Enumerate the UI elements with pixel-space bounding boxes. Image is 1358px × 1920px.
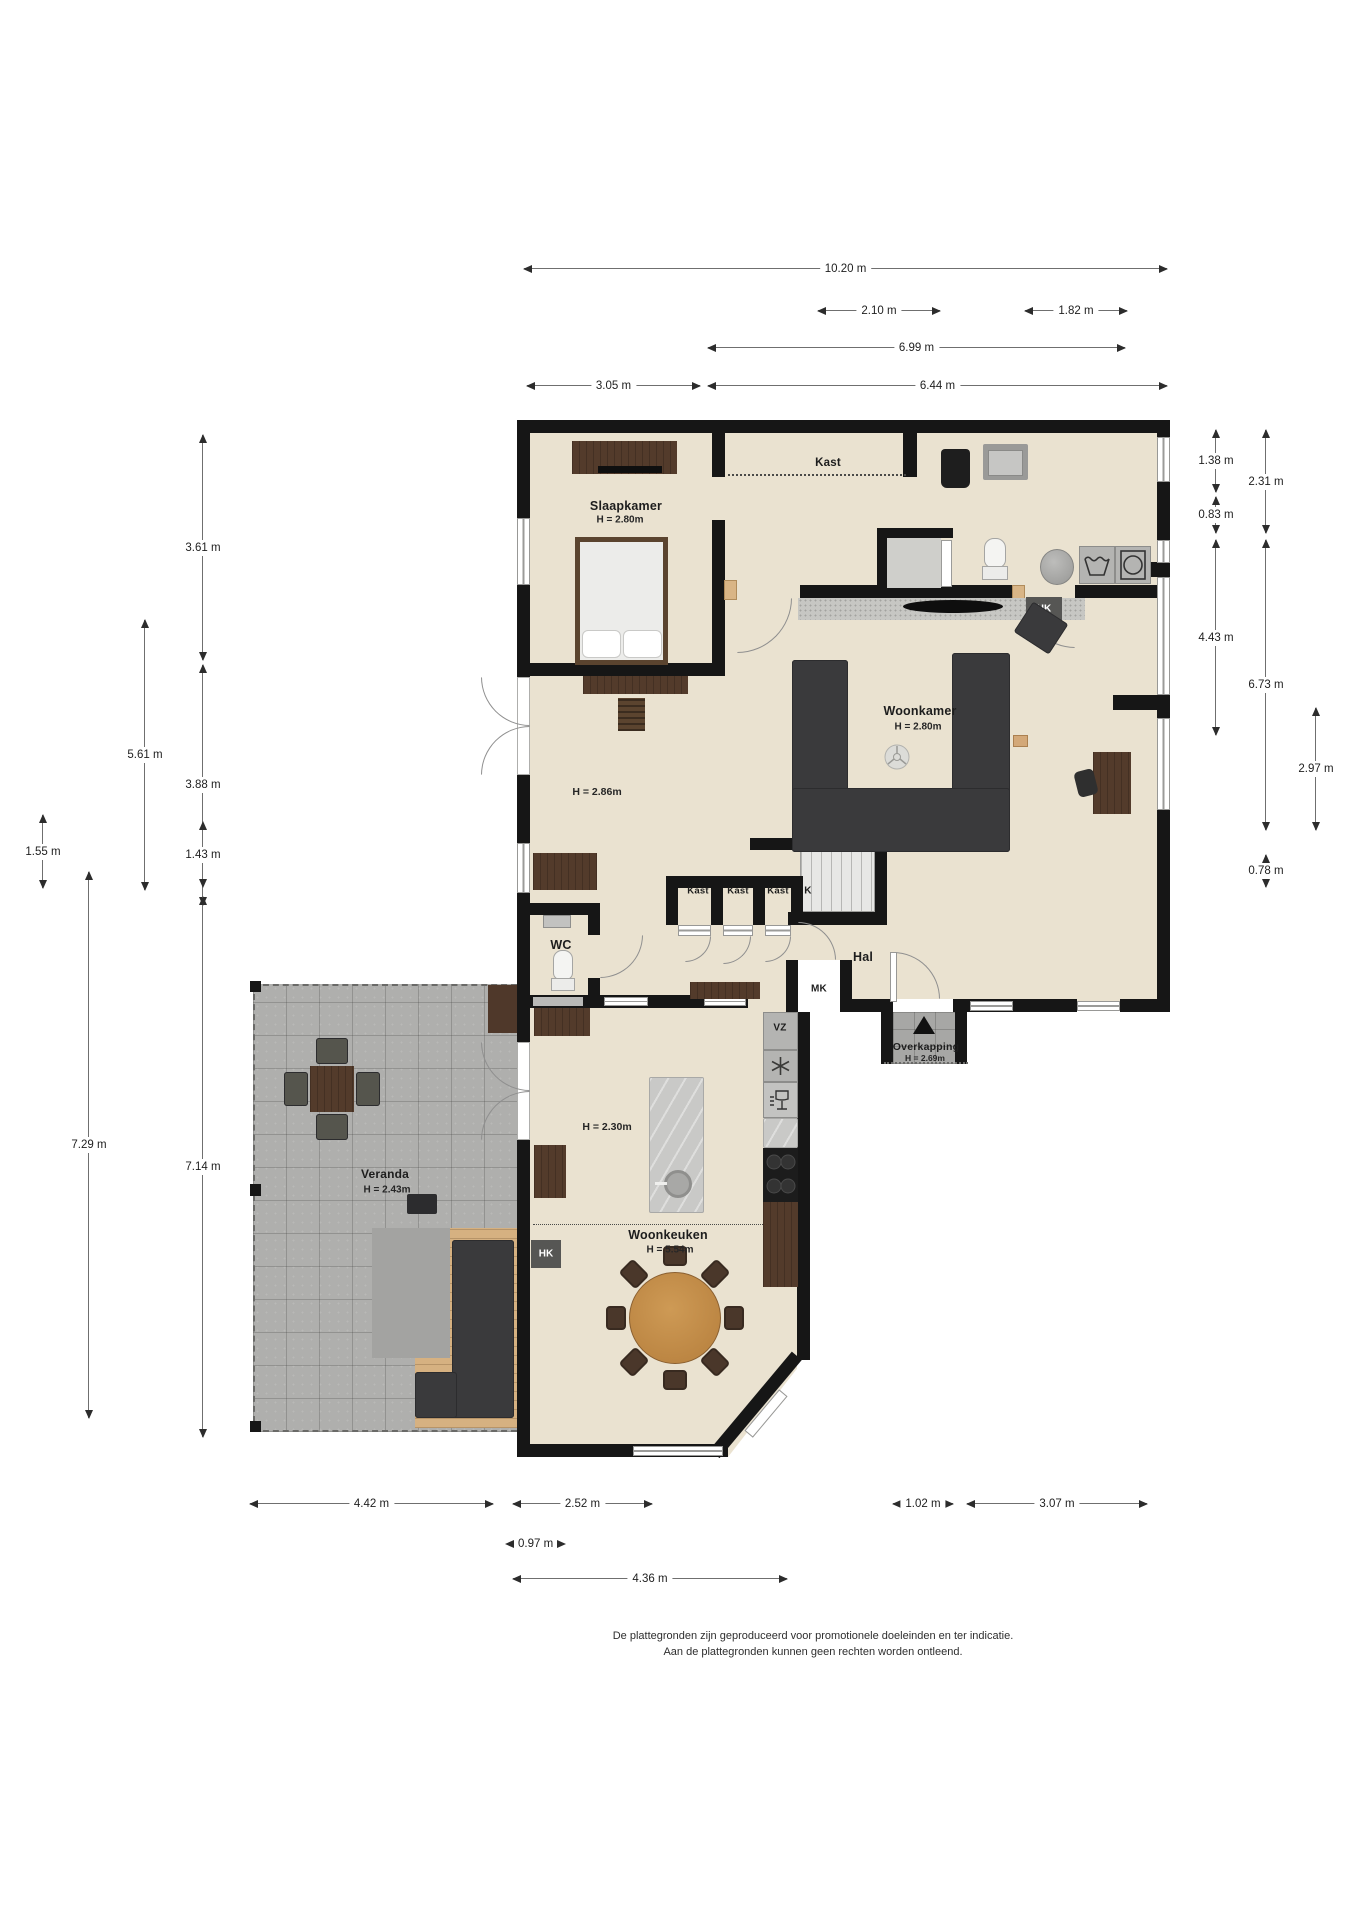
- veranda-bench: [356, 1072, 380, 1106]
- room-height-veranda: H = 2.43m: [364, 1185, 411, 1196]
- veranda-bench: [316, 1038, 348, 1064]
- dim-bottom-102: 1.02 m: [893, 1503, 953, 1504]
- disclaimer-line2: Aan de plattegronden kunnen geen rechten…: [563, 1644, 1063, 1660]
- window: [517, 843, 530, 893]
- veranda-edge-bottom: [253, 1430, 517, 1432]
- dim-right-297: 2.97 m: [1315, 708, 1316, 830]
- disclaimer: De plattegronden zijn geproduceerd voor …: [563, 1628, 1063, 1660]
- dining-chair: [663, 1370, 687, 1390]
- window-internal: [604, 997, 648, 1006]
- wall-top: [517, 420, 1170, 433]
- veranda-post: [250, 1421, 261, 1432]
- entrance-arrow-icon: [913, 1016, 935, 1034]
- dining-chair: [724, 1306, 744, 1330]
- chair: [941, 449, 970, 488]
- disclaimer-line1: De plattegronden zijn geproduceerd voor …: [563, 1628, 1063, 1644]
- window: [970, 1001, 1013, 1011]
- freezer: [763, 1050, 798, 1082]
- tv: [598, 466, 662, 473]
- dining-table: [629, 1272, 721, 1364]
- wall-pier: [1113, 695, 1157, 710]
- dim-left-143: 1.43 m: [202, 822, 203, 887]
- dim-bottom-436: 4.36 m: [513, 1578, 787, 1579]
- kitchen-zone-divider: [533, 1224, 763, 1225]
- veranda-edge-top: [253, 984, 517, 986]
- veranda-rug: [372, 1228, 450, 1358]
- veranda-bench: [284, 1072, 308, 1106]
- veranda-lounge-sofa: [452, 1240, 514, 1418]
- toilet-bowl: [984, 538, 1006, 568]
- ceiling-fan-icon: [884, 744, 910, 770]
- dim-top-699: 6.99 m: [708, 347, 1125, 348]
- room-label-hal: Hal: [853, 950, 873, 964]
- veranda-post: [250, 1184, 261, 1196]
- room-label-kast: Kast: [815, 457, 841, 469]
- room-height-overkapping: H = 2.69m: [905, 1053, 945, 1063]
- window: [1157, 437, 1170, 482]
- door-jamb: [724, 580, 737, 600]
- veranda-bench: [316, 1114, 348, 1140]
- hal-console: [690, 982, 760, 999]
- wall-segment: [666, 888, 678, 925]
- label-vz: VZ: [773, 1023, 786, 1034]
- wall-segment: [786, 960, 798, 1012]
- dim-bottom-442: 4.42 m: [250, 1503, 493, 1504]
- dim-bottom-097: 0.97 m: [505, 1538, 566, 1550]
- wall-segment: [1013, 999, 1077, 1012]
- dishwasher: [763, 1082, 798, 1118]
- window: [1077, 1001, 1120, 1011]
- zone-height-230: H = 2.30m: [582, 1121, 631, 1133]
- pillow: [623, 630, 662, 658]
- dim-bottom-252: 2.52 m: [513, 1503, 652, 1504]
- window: [1157, 718, 1170, 810]
- tv-curved: [903, 600, 1003, 613]
- room-label-woonkamer: Woonkamer: [883, 704, 956, 718]
- veranda-table: [310, 1066, 354, 1112]
- zone-height-286: H = 2.86m: [572, 786, 621, 798]
- dim-right-673: 6.73 m: [1265, 540, 1266, 830]
- wc-sill: [533, 997, 583, 1006]
- room-label-veranda: Veranda: [361, 1167, 409, 1181]
- veranda-cabinet: [488, 985, 517, 1033]
- wall-shower: [877, 528, 953, 538]
- side-table: [1013, 735, 1028, 747]
- island-faucet: [655, 1182, 667, 1185]
- room-label-overkapping: Overkapping: [893, 1041, 959, 1053]
- wc-toilet-bowl: [553, 950, 573, 980]
- staircase: [800, 850, 875, 912]
- dim-left-155: 1.55 m: [42, 815, 43, 888]
- dim-left-561: 5.61 m: [144, 620, 145, 890]
- veranda-post: [250, 981, 261, 992]
- dim-right-443: 4.43 m: [1215, 540, 1216, 735]
- kitchen-cabinet-tall: [534, 1145, 566, 1198]
- room-label-mk: MK: [811, 984, 827, 995]
- wall-segment: [712, 433, 725, 477]
- shower-glass: [941, 540, 952, 587]
- kitchen-counter: [763, 1118, 798, 1148]
- label-hk-keuken: HK: [539, 1249, 553, 1260]
- pillow: [582, 630, 621, 658]
- island-sink: [664, 1170, 692, 1198]
- desk: [1093, 752, 1131, 814]
- room-height-woonkeuken: H = 5.54m: [647, 1245, 694, 1256]
- wall-kitchen-right: [797, 1012, 810, 1360]
- window: [517, 518, 530, 585]
- dim-right-083: 0.83 m: [1215, 497, 1216, 533]
- bathroom-sink-basin: [988, 450, 1023, 476]
- sofa-right-arm: [952, 653, 1010, 793]
- veranda-lounge-sofa: [415, 1372, 457, 1418]
- toilet-tank: [982, 566, 1008, 580]
- door-swing: [481, 677, 530, 726]
- door-swing: [481, 726, 530, 775]
- dim-top-210: 2.10 m: [818, 310, 940, 311]
- window: [1157, 540, 1170, 563]
- closet-dotted-line: [728, 474, 906, 476]
- room-height-slaapkamer: H = 2.80m: [597, 515, 644, 526]
- nook-desk: [533, 853, 597, 890]
- kitchen-counter-wood: [763, 1202, 798, 1287]
- dim-top-1020: 10.20 m: [524, 268, 1167, 269]
- closet-door: [723, 925, 753, 936]
- window: [1157, 577, 1170, 695]
- veranda-edge-left: [253, 984, 255, 1432]
- boiler: [1040, 549, 1074, 585]
- dim-left-714: 7.14 m: [202, 897, 203, 1437]
- wall-segment: [1075, 585, 1157, 598]
- wall-segment: [791, 888, 803, 925]
- dim-left-729: 7.29 m: [88, 872, 89, 1418]
- dim-top-305: 3.05 m: [527, 385, 700, 386]
- dim-top-644: 6.44 m: [708, 385, 1167, 386]
- room-height-woonkamer: H = 2.80m: [895, 722, 942, 733]
- wall-right: [1157, 420, 1170, 1012]
- dim-top-182: 1.82 m: [1025, 310, 1127, 311]
- room-label-slaapkamer: Slaapkamer: [590, 499, 662, 513]
- wc-toilet-tank: [551, 978, 575, 991]
- room-label-closet-k: K: [804, 886, 811, 897]
- room-label-closet: Kast: [687, 886, 708, 897]
- kitchen-cabinet: [534, 1008, 590, 1036]
- wall-segment: [840, 960, 852, 1012]
- room-label-closet: Kast: [727, 886, 748, 897]
- front-door-leaf: [890, 952, 897, 1002]
- room-label-closet: Kast: [767, 886, 788, 897]
- wall-segment: [588, 903, 600, 935]
- room-label-wc: WC: [550, 938, 571, 952]
- wall-segment: [1120, 999, 1170, 1012]
- bedroom-bench: [583, 676, 688, 694]
- shower-floor: [887, 538, 941, 588]
- wc-sink: [543, 915, 571, 928]
- floorplan-page: Veranda H = 2.43m Overkapping H = 2.69m: [0, 0, 1358, 1920]
- wall-segment: [753, 888, 765, 925]
- wall-segment: [881, 1012, 893, 1064]
- veranda-coffee-table: [407, 1194, 437, 1214]
- wall-segment: [903, 433, 917, 477]
- dim-right-231: 2.31 m: [1265, 430, 1266, 533]
- dim-left-361: 3.61 m: [202, 435, 203, 660]
- cooktop: [763, 1148, 798, 1202]
- washing-machine-icon: [1115, 546, 1151, 584]
- wall-segment: [711, 888, 723, 925]
- closet-door: [765, 925, 791, 936]
- dim-right-138: 1.38 m: [1215, 430, 1216, 492]
- wall-segment: [955, 1012, 967, 1064]
- window: [633, 1446, 723, 1456]
- slat-bench: [618, 698, 645, 731]
- sofa-seat: [792, 788, 1010, 852]
- dining-chair: [606, 1306, 626, 1330]
- room-label-woonkeuken: Woonkeuken: [628, 1228, 708, 1242]
- closet-door: [678, 925, 711, 936]
- wall-shower: [877, 538, 887, 598]
- front-door-opening: [893, 999, 953, 1012]
- dim-right-078: 0.78 m: [1265, 855, 1266, 887]
- dim-bottom-307: 3.07 m: [967, 1503, 1147, 1504]
- laundry-sink-icon: [1079, 546, 1115, 584]
